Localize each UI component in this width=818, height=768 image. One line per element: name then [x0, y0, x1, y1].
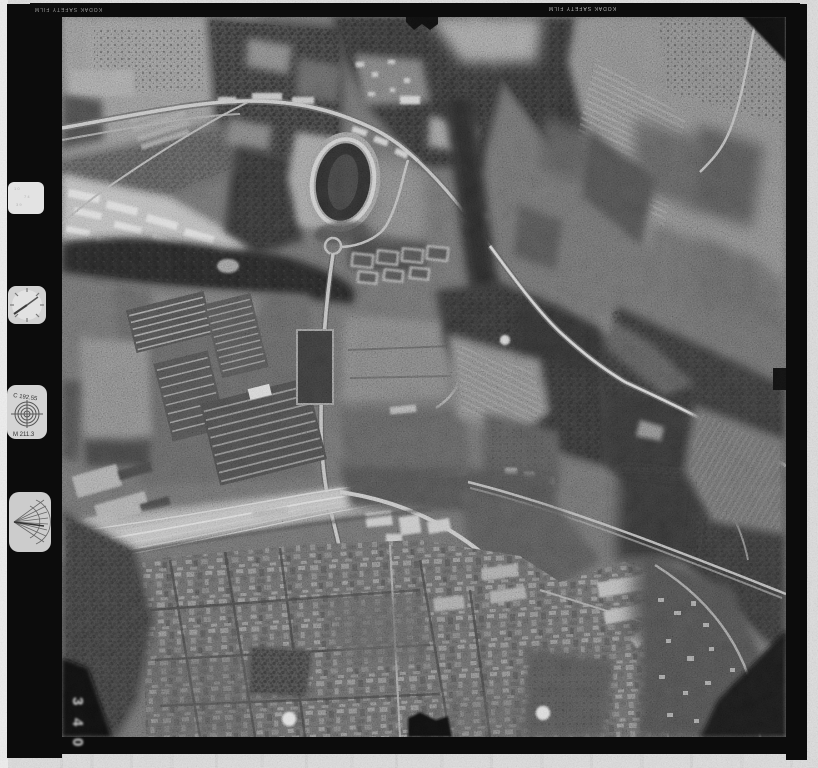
svg-text:4: 4 — [69, 718, 86, 727]
svg-text:KODAK SAFETY FILM: KODAK SAFETY FILM — [34, 6, 102, 12]
svg-text:3 9: 3 9 — [16, 202, 22, 207]
svg-text:KODAK SAFETY FILM: KODAK SAFETY FILM — [548, 5, 616, 11]
svg-text:1 0: 1 0 — [14, 186, 20, 191]
svg-text:7 4: 7 4 — [24, 194, 30, 199]
svg-text:0: 0 — [69, 738, 86, 746]
svg-text:M 211.3: M 211.3 — [13, 432, 35, 438]
svg-text:3: 3 — [69, 697, 86, 705]
